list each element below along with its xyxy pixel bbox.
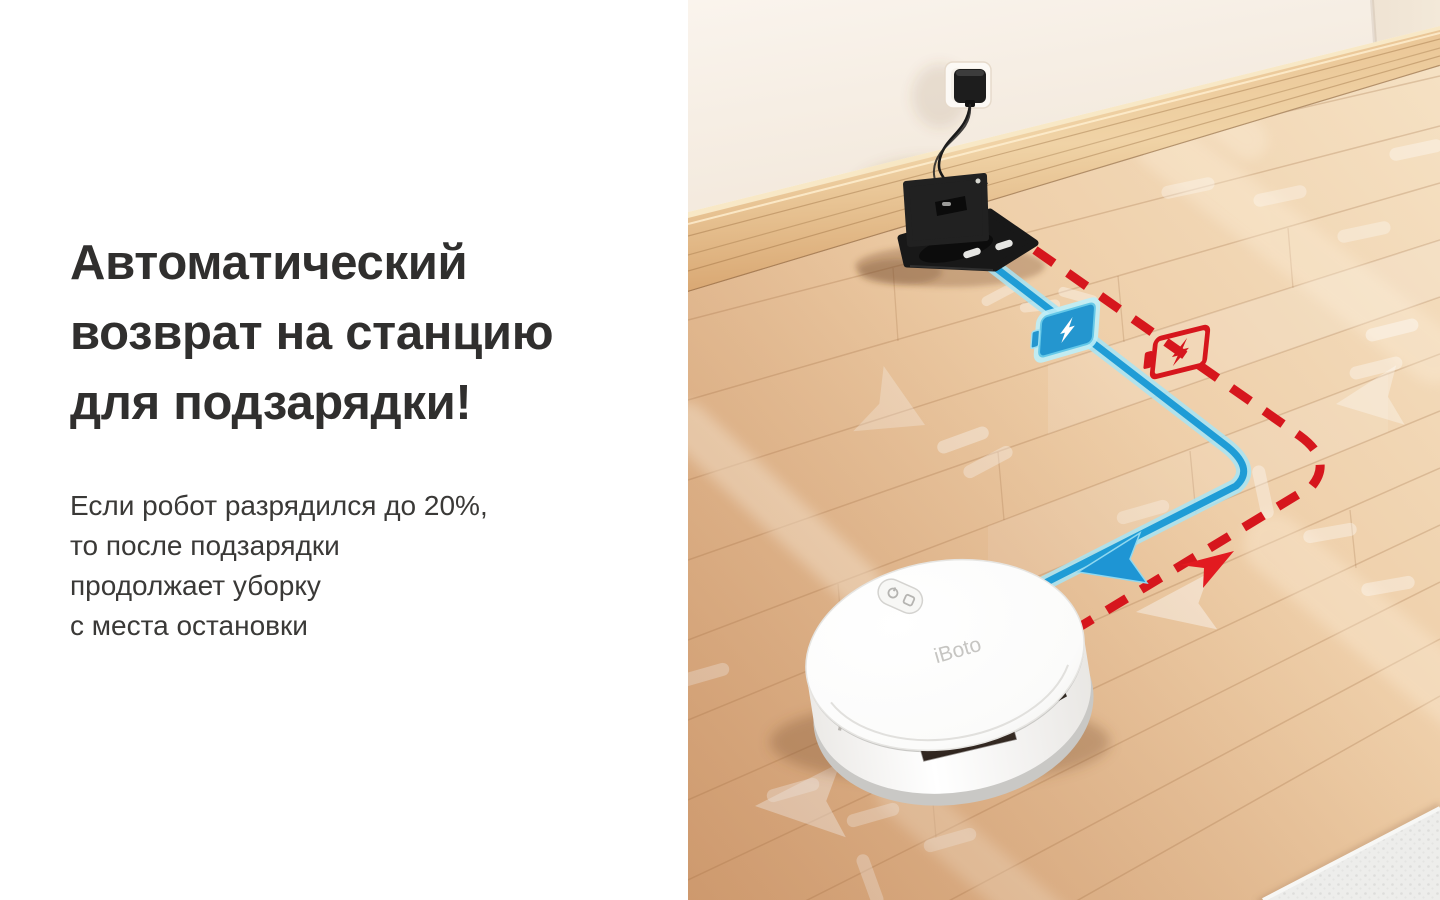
page-title: Автоматический возврат на станцию для по… <box>70 228 553 438</box>
body-line-2: то после подзарядки <box>70 526 488 566</box>
power-adapter <box>954 69 986 107</box>
heading-line-3: для подзарядки! <box>70 368 553 438</box>
product-photo: iBoto <box>688 0 1440 900</box>
text-panel: Автоматический возврат на станцию для по… <box>0 0 688 900</box>
dock-indicator-light <box>976 179 981 184</box>
promo-banner: Автоматический возврат на станцию для по… <box>0 0 1440 900</box>
body-line-3: продолжает уборку <box>70 566 488 606</box>
subtitle-text: Если робот разрядился до 20%, то после п… <box>70 486 488 646</box>
body-line-1: Если робот разрядился до 20%, <box>70 486 488 526</box>
heading-line-2: возврат на станцию <box>70 298 553 368</box>
dock-tower <box>906 176 988 244</box>
body-line-4: с места остановки <box>70 606 488 646</box>
heading-line-1: Автоматический <box>70 228 553 298</box>
